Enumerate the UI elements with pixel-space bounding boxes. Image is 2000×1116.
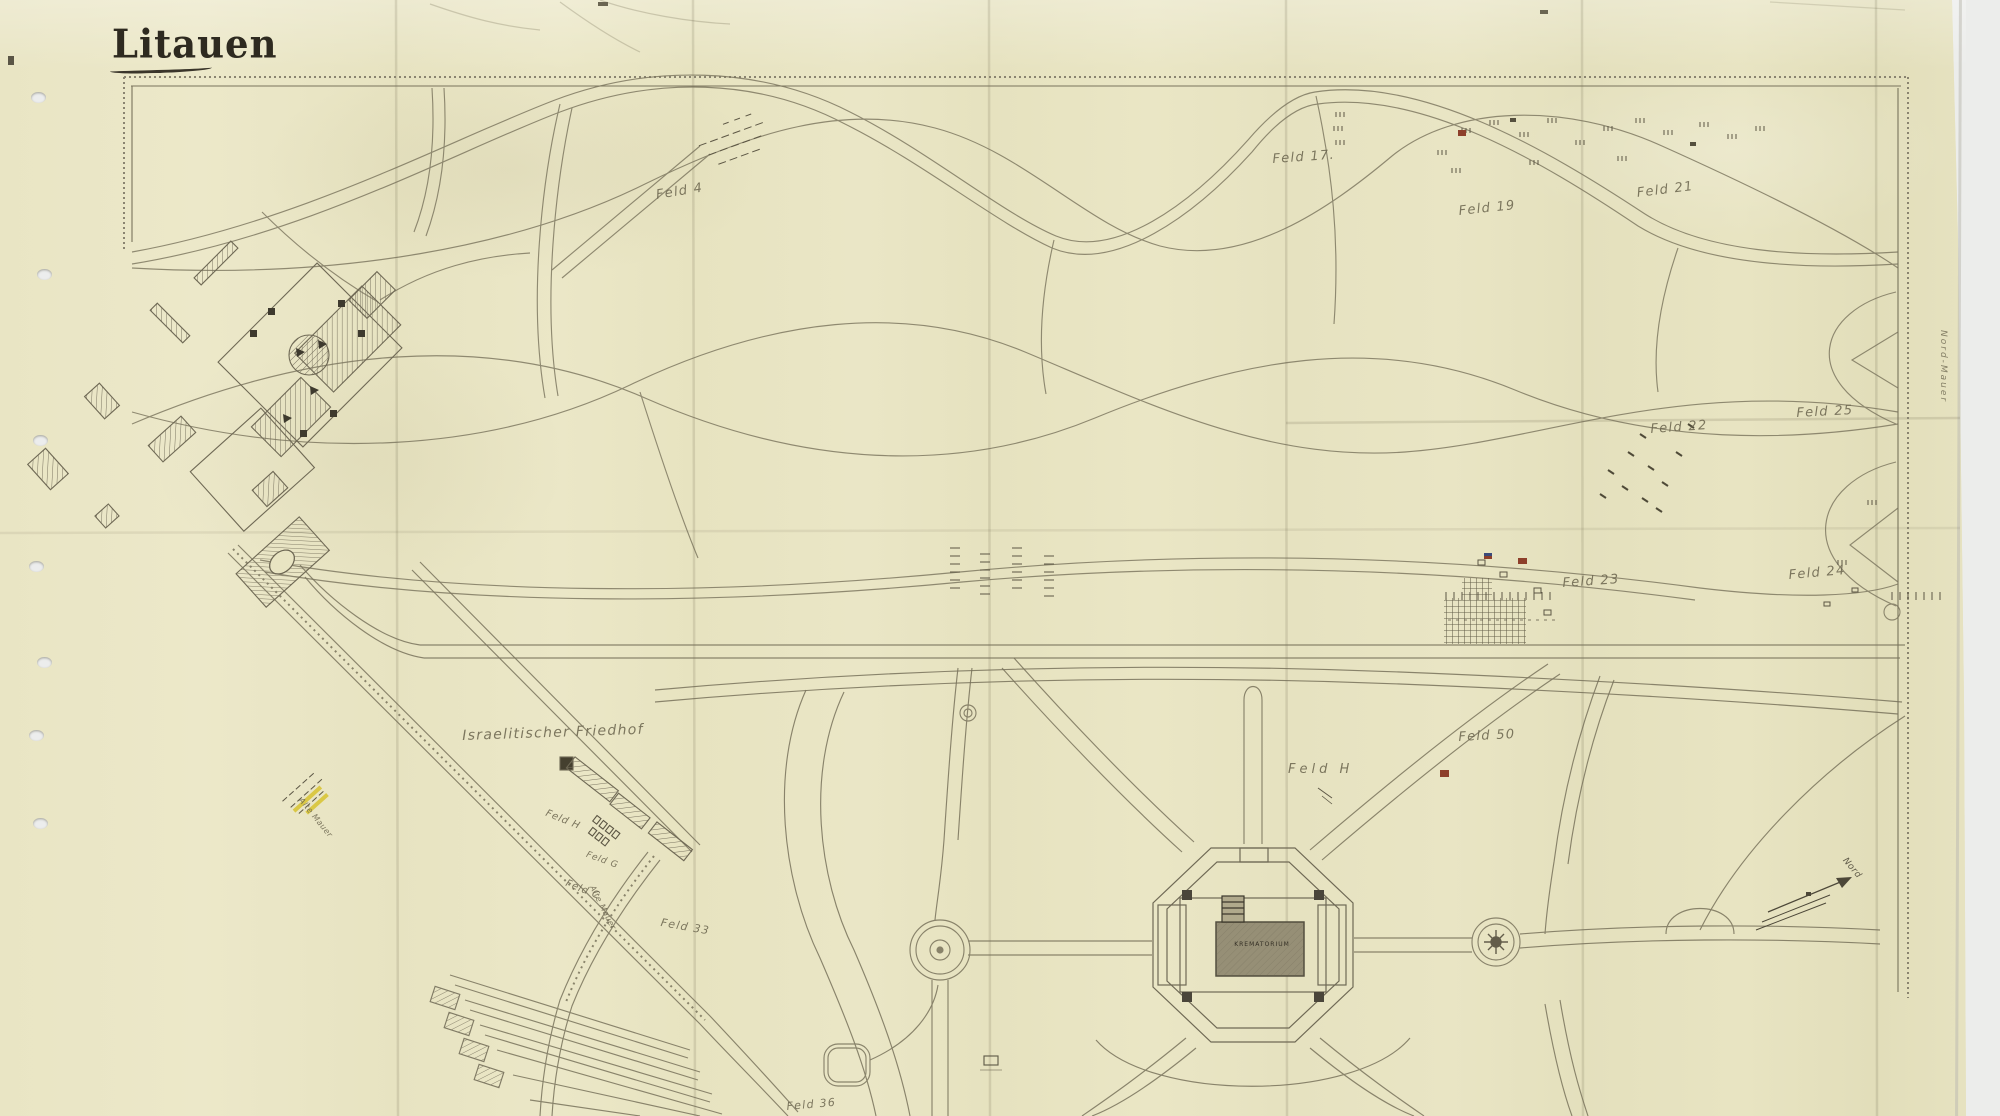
red-grave-marker [1440, 770, 1449, 777]
entrance-buildings [28, 241, 693, 861]
punch-hole [33, 435, 48, 446]
punch-hole [37, 657, 52, 668]
compass-arrow [1756, 877, 1852, 930]
red-grave-marker [1518, 558, 1527, 564]
formal-avenues [784, 658, 1905, 1116]
crematorium-label: KREMATORIUM [1218, 941, 1306, 948]
map-drawing [0, 0, 2000, 1116]
punch-hole [31, 92, 46, 103]
grave-cluster-feld4 [695, 111, 771, 168]
north-wall-label: Nord-Mauer [1938, 330, 1948, 403]
jewish-cemetery-band [228, 545, 798, 1116]
punch-hole [29, 561, 44, 572]
red-grave-marker [1458, 130, 1466, 136]
scanned-map-page: Litauen Feld 4 Feld 17. Feld 19 Feld 21 … [0, 0, 2000, 1116]
grave-cluster-feld24 [1824, 500, 1940, 606]
top-edge-wrinkles [8, 0, 1905, 65]
blue-grave-marker [1484, 553, 1492, 556]
grave-clusters [283, 111, 1940, 821]
punch-hole [33, 818, 48, 829]
punch-hole [37, 269, 52, 280]
punch-hole [29, 730, 44, 741]
field-label-H-right: Feld H [1288, 762, 1353, 777]
field-label-50: Feld 50 [1458, 727, 1516, 745]
field-label-25: Feld 25 [1796, 403, 1854, 421]
grave-cluster-feld22 [1600, 424, 1694, 512]
map-title: Litauen [112, 21, 277, 67]
